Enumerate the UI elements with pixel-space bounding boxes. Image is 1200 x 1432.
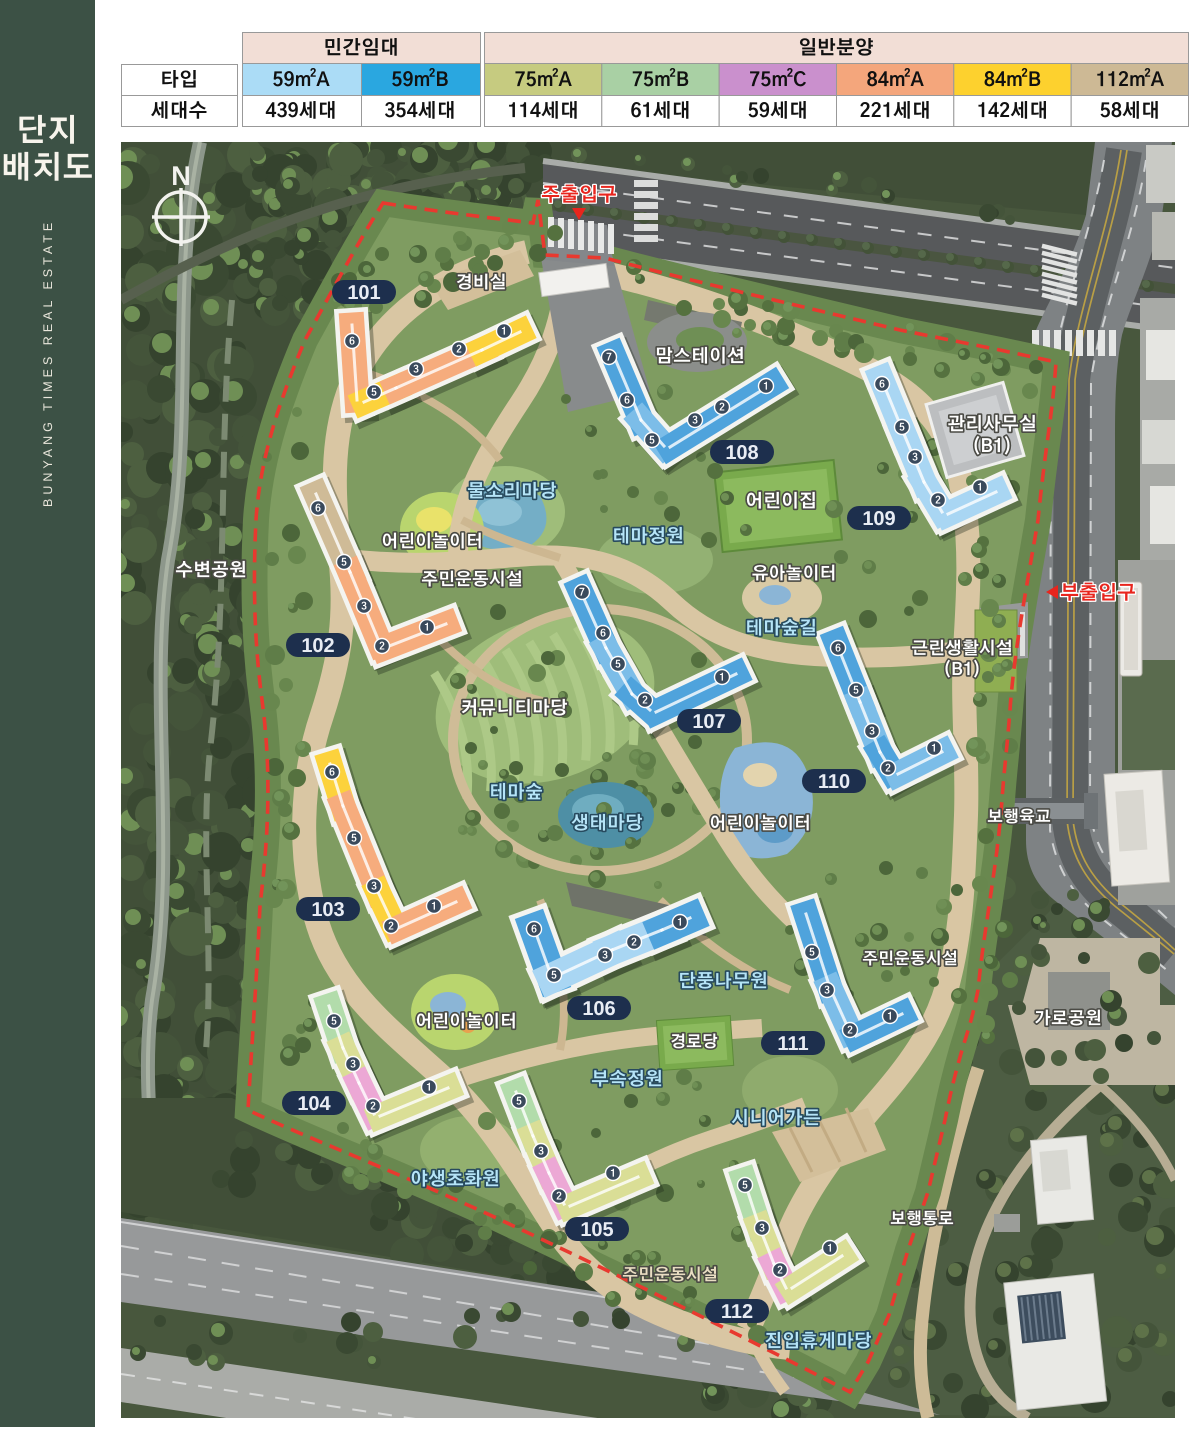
svg-text:N: N [171, 161, 191, 191]
svg-text:107: 107 [692, 711, 725, 733]
svg-text:105: 105 [580, 1219, 613, 1241]
svg-text:104: 104 [297, 1093, 331, 1115]
svg-text:109: 109 [862, 508, 895, 530]
svg-text:103: 103 [311, 899, 344, 921]
svg-text:BUNYANG TIMES REAL ESTATE: BUNYANG TIMES REAL ESTATE [41, 219, 55, 507]
svg-text:101: 101 [347, 282, 380, 304]
svg-text:110: 110 [818, 771, 850, 793]
svg-text:102: 102 [301, 635, 334, 657]
svg-text:106: 106 [582, 998, 615, 1020]
svg-text:108: 108 [725, 442, 758, 464]
svg-text:111: 111 [777, 1033, 808, 1055]
svg-text:112: 112 [721, 1301, 753, 1323]
